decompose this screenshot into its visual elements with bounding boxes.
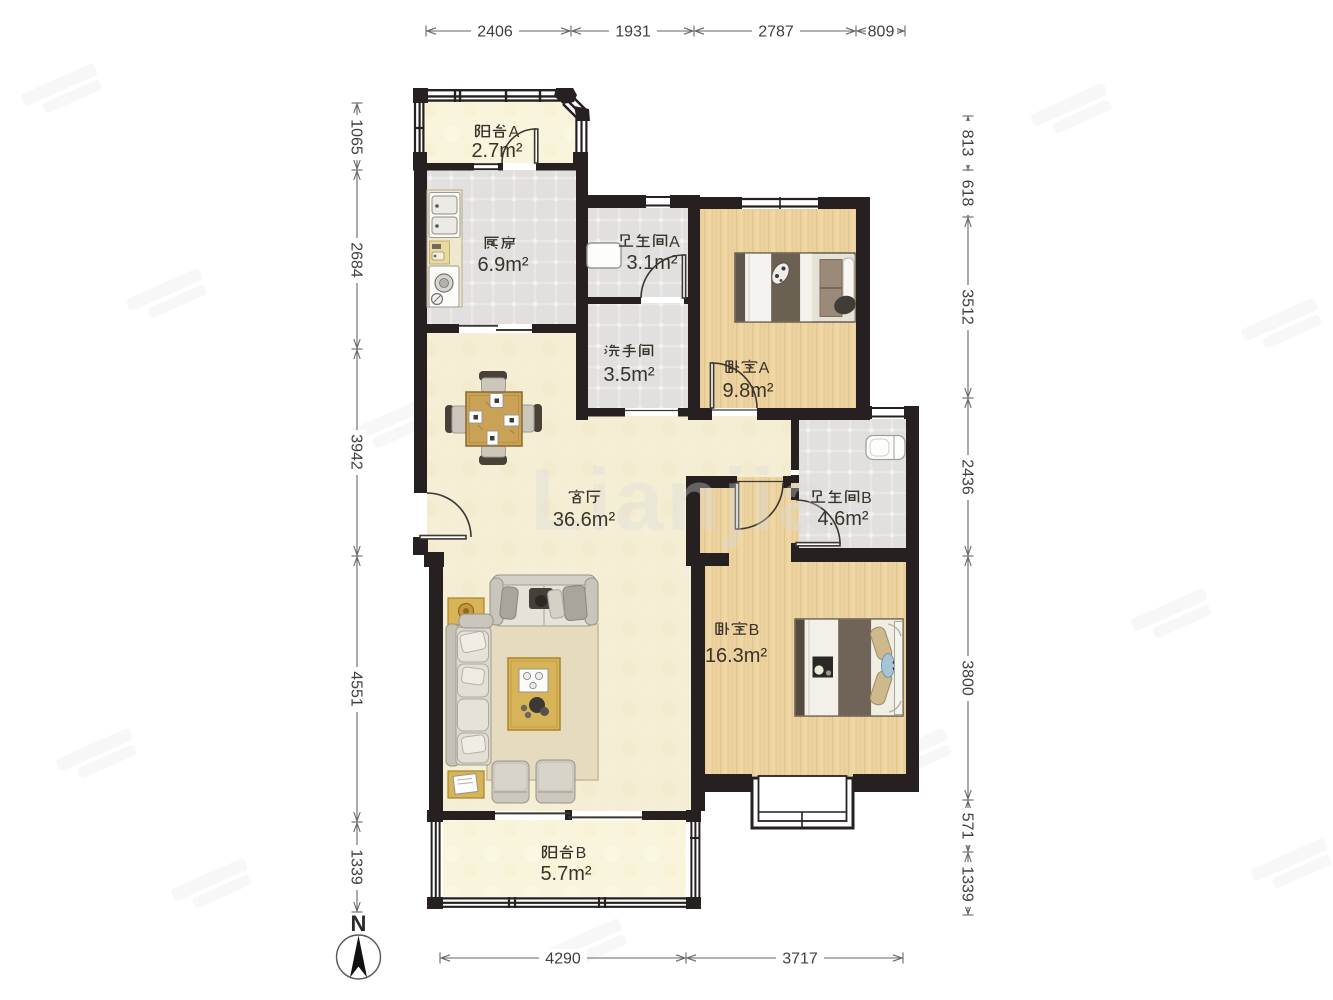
svg-text:B: B [749, 622, 760, 639]
svg-text:3800: 3800 [959, 660, 976, 696]
svg-text:B: B [576, 845, 587, 862]
svg-text:5.7m²: 5.7m² [540, 863, 591, 885]
svg-text:2.7m²: 2.7m² [471, 140, 522, 162]
svg-text:1339: 1339 [959, 866, 976, 902]
svg-text:N: N [351, 911, 367, 936]
svg-text:A: A [509, 124, 520, 141]
svg-text:A: A [669, 234, 680, 251]
svg-text:Lianjia: Lianjia [530, 450, 830, 549]
svg-text:1065: 1065 [348, 119, 365, 155]
svg-text:4.6m²: 4.6m² [817, 508, 868, 530]
svg-text:2406: 2406 [477, 24, 513, 41]
svg-text:2436: 2436 [959, 459, 976, 495]
svg-text:1931: 1931 [615, 24, 651, 41]
svg-text:618: 618 [959, 180, 976, 207]
svg-text:1339: 1339 [348, 849, 365, 885]
svg-text:2684: 2684 [348, 242, 365, 278]
svg-text:3942: 3942 [348, 434, 365, 470]
svg-text:4551: 4551 [348, 671, 365, 707]
svg-text:3512: 3512 [959, 289, 976, 325]
svg-text:2787: 2787 [758, 24, 794, 41]
svg-text:3.5m²: 3.5m² [603, 364, 654, 386]
svg-text:B: B [861, 490, 872, 507]
svg-text:813: 813 [959, 130, 976, 157]
svg-text:4290: 4290 [545, 951, 581, 968]
svg-text:809: 809 [868, 24, 895, 41]
svg-text:36.6m²: 36.6m² [553, 509, 616, 531]
svg-text:3.1m²: 3.1m² [626, 252, 677, 274]
svg-text:3717: 3717 [782, 951, 818, 968]
svg-text:9.8m²: 9.8m² [722, 380, 773, 402]
svg-text:16.3m²: 16.3m² [705, 645, 768, 667]
svg-text:571: 571 [959, 813, 976, 840]
svg-text:A: A [759, 360, 770, 377]
svg-text:6.9m²: 6.9m² [477, 254, 528, 276]
